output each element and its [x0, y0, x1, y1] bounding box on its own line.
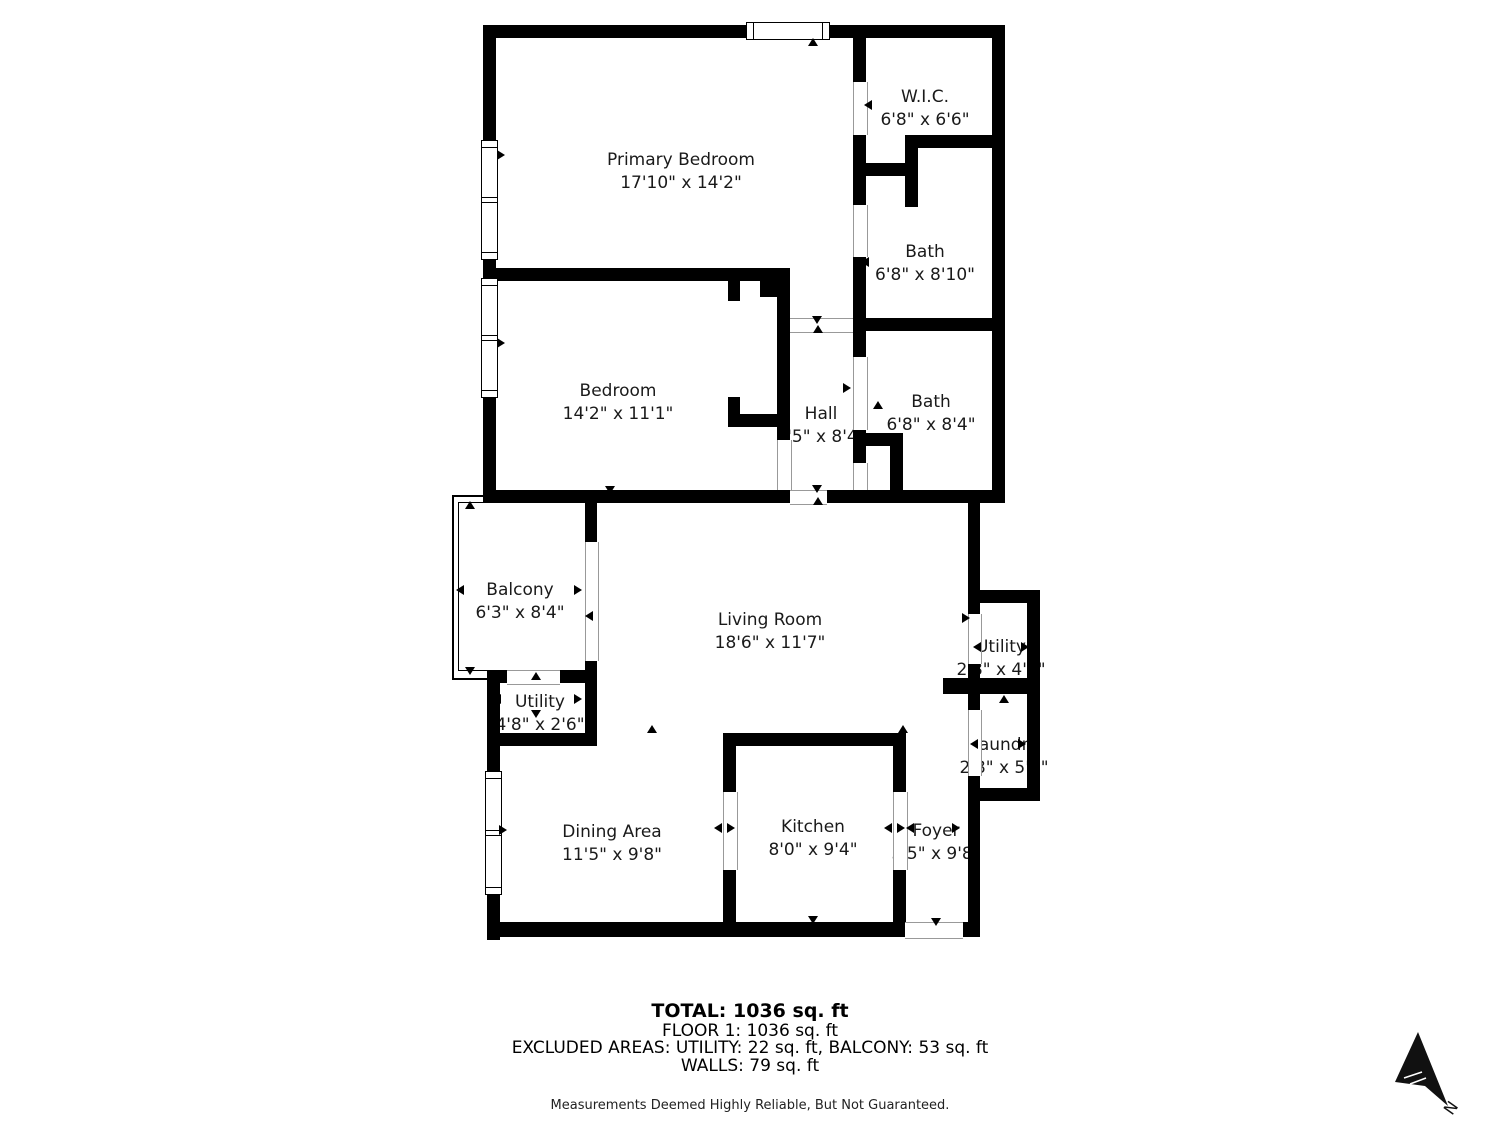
room-name: Bedroom: [563, 380, 674, 403]
window-mullion: [482, 147, 497, 148]
door-arrow: [873, 401, 883, 409]
room-label-primary-bedroom: Primary Bedroom 17'10" x 14'2": [607, 149, 755, 195]
window-mullion: [486, 835, 501, 836]
door-arrow: [497, 338, 505, 348]
wall: [943, 678, 1037, 694]
window-mullion: [482, 285, 497, 286]
room-dims: 18'6" x 11'7": [715, 632, 826, 655]
wall: [893, 870, 906, 925]
door-arrow: [861, 257, 869, 267]
door-arrow: [952, 823, 960, 833]
room-label-dining-area: Dining Area 11'5" x 9'8": [562, 821, 662, 867]
door-arrow: [884, 823, 892, 833]
room-name: Balcony: [475, 579, 564, 602]
door-arrow: [531, 710, 541, 718]
room-dims: 11'5" x 9'8": [562, 844, 662, 867]
door-arrow: [574, 585, 582, 595]
room-name: W.I.C.: [880, 86, 969, 109]
door-arrow: [897, 823, 905, 833]
door-opening: [968, 614, 982, 664]
window-mullion: [482, 390, 497, 391]
window-mullion: [482, 335, 497, 336]
wall: [893, 746, 906, 792]
door-opening: [777, 440, 792, 490]
door-arrow: [534, 922, 544, 930]
door-arrow: [931, 918, 941, 926]
walls-area: WALLS: 79 sq. ft: [0, 1058, 1500, 1076]
excluded-areas: EXCLUDED AREAS: UTILITY: 22 sq. ft, BALC…: [0, 1040, 1500, 1058]
door-arrow: [813, 325, 823, 333]
room-name: Kitchen: [768, 816, 857, 839]
door-arrow: [998, 788, 1008, 796]
door-arrow: [585, 611, 593, 621]
door-arrow: [493, 694, 501, 704]
room-name: Bath: [875, 241, 975, 264]
door-arrow: [714, 823, 722, 833]
room-label-bath-lower: Bath 6'8" x 8'4": [886, 391, 975, 437]
wall: [585, 498, 597, 542]
door-arrow: [812, 316, 822, 324]
door-arrow: [898, 725, 908, 733]
wall: [728, 414, 790, 427]
room-dims: 14'2" x 11'1": [563, 403, 674, 426]
north-arrow-needle: [1395, 1032, 1448, 1106]
door-arrow: [962, 613, 970, 623]
wall: [483, 25, 1005, 38]
door-opening: [853, 205, 868, 257]
wall: [968, 503, 980, 593]
wall: [496, 268, 790, 281]
door-opening: [853, 357, 868, 430]
door-arrow: [843, 383, 851, 393]
wall: [723, 733, 906, 746]
door-arrow: [784, 737, 794, 745]
door-arrow: [727, 823, 735, 833]
window-mullion: [482, 202, 497, 203]
window-mullion: [482, 197, 497, 198]
wall: [728, 281, 740, 301]
door-arrow: [605, 486, 615, 494]
door-arrow: [970, 739, 978, 749]
window: [481, 278, 498, 398]
door-arrow: [456, 585, 464, 595]
room-name: Bath: [886, 391, 975, 414]
door-arrow: [864, 100, 872, 110]
room-name: Dining Area: [562, 821, 662, 844]
door-arrow: [647, 725, 657, 733]
wall: [968, 664, 980, 678]
wall: [890, 433, 903, 503]
wall: [968, 801, 980, 937]
window-mullion: [482, 340, 497, 341]
window-mullion: [486, 887, 501, 888]
door-arrow: [998, 678, 1008, 686]
wall: [866, 318, 1005, 331]
door-arrow: [465, 667, 475, 675]
wall: [968, 776, 980, 788]
room-dims: 17'10" x 14'2": [607, 172, 755, 195]
wall: [827, 490, 1005, 503]
window: [481, 140, 498, 260]
room-label-kitchen: Kitchen 8'0" x 9'4": [768, 816, 857, 862]
wall: [1027, 590, 1040, 801]
door-arrow: [808, 38, 818, 46]
window-mullion: [822, 23, 823, 39]
window-mullion: [482, 252, 497, 253]
door-arrow: [574, 694, 582, 704]
door-arrow: [993, 400, 1001, 410]
area-summary: TOTAL: 1036 sq. ft FLOOR 1: 1036 sq. ft …: [0, 1003, 1500, 1115]
door-arrow: [499, 825, 507, 835]
room-dims: 6'8" x 6'6": [880, 109, 969, 132]
wall: [853, 257, 866, 357]
wall: [723, 870, 736, 925]
door-arrow: [813, 497, 823, 505]
door-arrow: [938, 320, 948, 328]
door-arrow: [1018, 739, 1026, 749]
wall: [487, 733, 597, 746]
door-arrow: [497, 150, 505, 160]
door-opening: [853, 463, 868, 490]
wall: [487, 922, 905, 937]
wall: [853, 135, 866, 205]
room-label-bath-upper: Bath 6'8" x 8'10": [875, 241, 975, 287]
room-label-balcony: Balcony 6'3" x 8'4": [475, 579, 564, 625]
door-arrow: [465, 501, 475, 509]
door-arrow: [808, 916, 818, 924]
door-arrow: [999, 695, 1009, 703]
room-label-living-room: Living Room 18'6" x 11'7": [715, 609, 826, 655]
door-arrow: [610, 270, 620, 278]
disclaimer: Measurements Deemed Highly Reliable, But…: [0, 1097, 1500, 1115]
door-arrow: [531, 672, 541, 680]
window-mullion: [753, 23, 754, 39]
window-mullion: [486, 778, 501, 779]
wall: [483, 25, 496, 503]
door-arrow: [957, 140, 967, 148]
wall: [483, 490, 790, 503]
room-label-wic: W.I.C. 6'8" x 6'6": [880, 86, 969, 132]
room-name: Living Room: [715, 609, 826, 632]
door-arrow: [996, 256, 1004, 266]
door-arrow: [906, 823, 914, 833]
door-arrow: [812, 485, 822, 493]
door-arrow: [973, 642, 981, 652]
door-opening: [585, 542, 599, 661]
wall: [723, 746, 736, 792]
room-dims: 6'8" x 8'10": [875, 264, 975, 287]
total-area: TOTAL: 1036 sq. ft: [0, 1003, 1500, 1021]
room-name: Primary Bedroom: [607, 149, 755, 172]
floor-plan: Primary Bedroom 17'10" x 14'2" W.I.C. 6'…: [0, 0, 1500, 1125]
wall: [968, 694, 980, 710]
room-dims: 8'0" x 9'4": [768, 839, 857, 862]
door-arrow: [1021, 642, 1029, 652]
wall: [866, 163, 908, 176]
north-arrow: N: [1388, 1026, 1498, 1121]
room-dims: 6'3" x 8'4": [475, 602, 564, 625]
room-label-bedroom: Bedroom 14'2" x 11'1": [563, 380, 674, 426]
door-arrow: [998, 592, 1008, 600]
wall: [853, 38, 866, 82]
